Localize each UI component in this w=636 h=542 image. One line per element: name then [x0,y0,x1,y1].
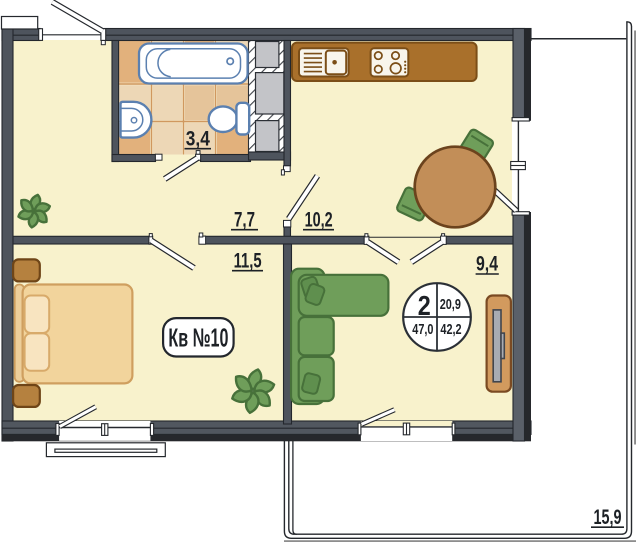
svg-text:2: 2 [418,290,431,321]
svg-text:7,7: 7,7 [234,208,255,231]
svg-text:3,4: 3,4 [186,127,210,150]
svg-text:47,0: 47,0 [412,322,433,338]
svg-text:11,5: 11,5 [234,249,262,272]
svg-text:Кв №10: Кв №10 [168,322,228,352]
svg-text:15,9: 15,9 [594,506,622,529]
svg-text:42,2: 42,2 [440,322,461,338]
svg-text:9,4: 9,4 [476,253,498,276]
svg-text:20,9: 20,9 [440,297,461,313]
svg-text:10,2: 10,2 [305,208,333,231]
